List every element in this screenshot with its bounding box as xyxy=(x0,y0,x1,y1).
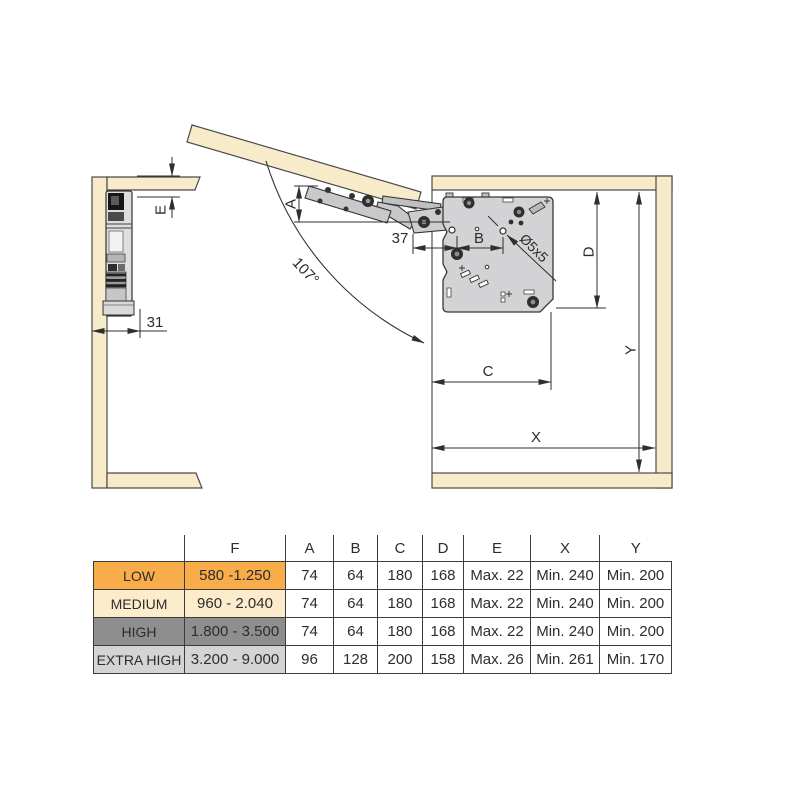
cell-c: 180 xyxy=(378,590,423,618)
dim-label-d: D xyxy=(580,246,597,257)
dim-label-y: Y xyxy=(622,345,639,355)
cell-x: Min. 261 xyxy=(531,646,600,674)
row-label: LOW xyxy=(94,562,185,590)
cell-f: 960 - 2.040 xyxy=(185,590,286,618)
dim-label-c: C xyxy=(483,363,494,380)
cell-a: 96 xyxy=(286,646,334,674)
cell-d: 168 xyxy=(423,618,464,646)
cell-f: 1.800 - 3.500 xyxy=(185,618,286,646)
cell-d: 168 xyxy=(423,590,464,618)
cell-x: Min. 240 xyxy=(531,562,600,590)
cell-c: 180 xyxy=(378,618,423,646)
cabinet-bottom-panel xyxy=(432,473,672,488)
dim-label-37: 37 xyxy=(392,230,409,247)
side-panel xyxy=(92,177,107,488)
cell-a: 74 xyxy=(286,590,334,618)
cell-f: 580 -1.250 xyxy=(185,562,286,590)
cell-f: 3.200 - 9.000 xyxy=(185,646,286,674)
cell-y: Min. 200 xyxy=(600,590,672,618)
header-e: E xyxy=(464,535,531,562)
header-c: C xyxy=(378,535,423,562)
cell-b: 64 xyxy=(334,618,378,646)
technical-diagram: E 31 107° xyxy=(0,0,800,535)
cell-x: Min. 240 xyxy=(531,590,600,618)
header-y: Y xyxy=(600,535,672,562)
header-f: F xyxy=(185,535,286,562)
specification-table: F A B C D E X Y LOW 580 -1.250 74 64 180… xyxy=(93,535,672,674)
table-row-low: LOW 580 -1.250 74 64 180 168 Max. 22 Min… xyxy=(94,562,672,590)
dim-label-31: 31 xyxy=(147,314,164,331)
cell-x: Min. 240 xyxy=(531,618,600,646)
cell-a: 74 xyxy=(286,562,334,590)
lift-mechanism-side-view xyxy=(103,191,134,316)
row-label: HIGH xyxy=(94,618,185,646)
side-top-shelf xyxy=(107,177,200,190)
cell-y: Min. 200 xyxy=(600,562,672,590)
header-b: B xyxy=(334,535,378,562)
cell-b: 64 xyxy=(334,562,378,590)
header-a: A xyxy=(286,535,334,562)
row-label: MEDIUM xyxy=(94,590,185,618)
cell-e: Max. 22 xyxy=(464,590,531,618)
dim-label-e: E xyxy=(152,205,169,215)
header-x: X xyxy=(531,535,600,562)
table-row-high: HIGH 1.800 - 3.500 74 64 180 168 Max. 22… xyxy=(94,618,672,646)
cell-c: 200 xyxy=(378,646,423,674)
cell-e: Max. 22 xyxy=(464,562,531,590)
dim-label-a: A xyxy=(282,199,299,209)
cell-a: 74 xyxy=(286,618,334,646)
table-row-extra-high: EXTRA HIGH 3.200 - 9.000 96 128 200 158 … xyxy=(94,646,672,674)
cell-e: Max. 22 xyxy=(464,618,531,646)
cell-d: 168 xyxy=(423,562,464,590)
cabinet-top-panel xyxy=(432,176,672,190)
dim-label-angle: 107° xyxy=(289,254,323,288)
cell-e: Max. 26 xyxy=(464,646,531,674)
header-d: D xyxy=(423,535,464,562)
cell-b: 64 xyxy=(334,590,378,618)
cell-y: Min. 170 xyxy=(600,646,672,674)
cell-c: 180 xyxy=(378,562,423,590)
table-row-medium: MEDIUM 960 - 2.040 74 64 180 168 Max. 22… xyxy=(94,590,672,618)
dim-label-b: B xyxy=(474,230,484,247)
header-blank xyxy=(94,535,185,562)
cell-b: 128 xyxy=(334,646,378,674)
page: E 31 107° xyxy=(0,0,800,800)
side-bottom-shelf xyxy=(107,473,202,488)
cell-y: Min. 200 xyxy=(600,618,672,646)
table-header-row: F A B C D E X Y xyxy=(94,535,672,562)
cell-d: 158 xyxy=(423,646,464,674)
row-label: EXTRA HIGH xyxy=(94,646,185,674)
cabinet-right-panel xyxy=(656,176,672,488)
dim-label-x: X xyxy=(531,429,541,446)
